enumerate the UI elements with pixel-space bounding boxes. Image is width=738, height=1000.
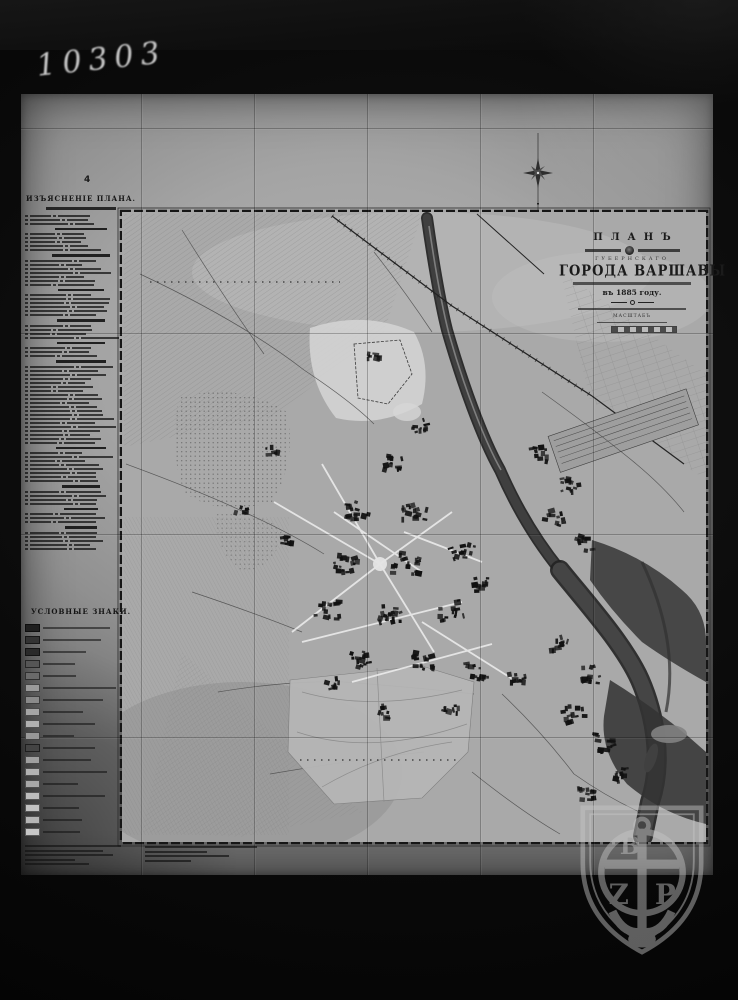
sign-row [25, 696, 137, 704]
legend-entry-row [25, 394, 137, 396]
sign-swatch [25, 768, 40, 776]
building-block [414, 658, 419, 660]
building-block [615, 771, 618, 774]
legend-entry-row [25, 536, 137, 538]
building-block [541, 451, 545, 456]
legend-entry-row [25, 284, 137, 286]
legend-entry-row [25, 302, 137, 304]
sign-row [25, 828, 137, 836]
building-block [356, 659, 359, 665]
building-block [270, 445, 274, 450]
building-block [345, 571, 350, 574]
legend-entry-row [25, 310, 137, 312]
legend-entry-row [25, 249, 137, 251]
building-block [399, 620, 402, 623]
building-block [333, 562, 336, 565]
map-title-block: ПЛАНЪ ГУБЕРНСКАГО ГОРОДА ВАРШАВЫ въ 1885… [559, 232, 705, 333]
legend-entry-row [25, 495, 137, 497]
legend-entry-row [25, 276, 137, 278]
title-plan-word: ПЛАНЪ [559, 232, 705, 243]
legend-entry-row [25, 426, 137, 428]
legend-entry-row [25, 268, 137, 270]
building-block [388, 612, 391, 617]
legend-footnotes [25, 845, 137, 865]
legend-entry-row [25, 456, 137, 458]
building-block [337, 553, 342, 559]
sign-swatch [25, 624, 40, 632]
sign-swatch [25, 828, 40, 836]
title-divider-ornament [559, 300, 705, 305]
building-block [586, 676, 592, 682]
building-block [616, 780, 620, 784]
legend-section-header [52, 254, 109, 257]
sign-label-bar [43, 711, 83, 713]
sign-row [25, 672, 137, 680]
sign-label-bar [43, 699, 103, 701]
building-block [329, 604, 331, 607]
legend-entry-row [25, 544, 137, 546]
sign-row [25, 768, 137, 776]
building-block [568, 704, 572, 709]
legend-entry-row [25, 452, 137, 454]
legend-section-header [56, 360, 107, 363]
watermark-letter-top: B [620, 831, 640, 860]
legend-entry-row [25, 406, 137, 408]
building-block [383, 715, 390, 721]
building-block [534, 454, 539, 459]
sign-row [25, 660, 137, 668]
photo-background: 10303 [0, 0, 738, 1000]
sign-swatch [25, 720, 40, 728]
building-block [438, 607, 443, 611]
legend-entry-row [25, 430, 137, 432]
legend-entry-row [25, 503, 137, 505]
map-sheet: 4 ИЗЪЯСНЕНІЕ ПЛАНА. УСЛОВНЫЕ ЗНАКИ. ПЛАН… [21, 94, 713, 875]
building-block [342, 569, 345, 572]
building-block [462, 556, 467, 559]
building-block [549, 647, 556, 653]
sign-swatch [25, 744, 40, 752]
sign-label-bar [43, 747, 95, 749]
legend-section-header [58, 289, 103, 292]
signs-swatch-list [25, 624, 137, 836]
sign-row [25, 744, 137, 752]
legend-entry-row [25, 215, 137, 217]
building-block [565, 706, 568, 711]
building-block [486, 577, 489, 579]
building-block [437, 614, 442, 619]
building-block [581, 707, 584, 712]
building-block [514, 673, 517, 677]
building-block [420, 427, 422, 429]
building-block [478, 667, 480, 669]
sign-row [25, 708, 137, 716]
building-block [242, 510, 249, 515]
legend-entry-row [25, 480, 137, 482]
sign-row [25, 732, 137, 740]
building-block [409, 506, 411, 510]
scale-label: МАСШТАБЪ [559, 314, 705, 319]
illegible-text-line [573, 282, 691, 285]
illegible-text-line [585, 249, 621, 252]
sign-row [25, 636, 137, 644]
building-block [380, 712, 383, 716]
building-block [337, 680, 340, 685]
legend-index-list [25, 215, 137, 550]
building-block [451, 606, 456, 611]
sign-label-bar [43, 795, 105, 797]
building-block [538, 444, 545, 450]
building-block [380, 706, 384, 710]
sign-row [25, 780, 137, 788]
legend-entry-row [25, 306, 137, 308]
building-block [482, 581, 489, 586]
imperial-crest-icon [625, 246, 634, 255]
building-block [510, 680, 513, 686]
sign-label-bar [43, 771, 107, 773]
building-block [385, 618, 387, 621]
compass-rose-icon [523, 133, 553, 215]
sign-swatch [25, 696, 40, 704]
legend-entry-row [25, 223, 137, 225]
legend-section-header [55, 228, 106, 231]
title-year-line: въ 1885 году. [559, 288, 705, 297]
legend-entry-row [25, 370, 137, 372]
sign-label-bar [43, 723, 95, 725]
building-block [386, 454, 392, 459]
building-block [442, 618, 446, 622]
building-block [390, 571, 396, 575]
sign-label-bar [43, 735, 74, 737]
legend-entry-row [25, 374, 137, 376]
building-block [571, 489, 574, 495]
building-block [454, 704, 457, 707]
sign-label-bar [43, 783, 78, 785]
legend-entry-row [25, 280, 137, 282]
legend-entry-row [25, 521, 137, 523]
legend-entry-row [25, 402, 137, 404]
title-gubernia-word: ГУБЕРНСКАГО [559, 256, 705, 262]
building-block [454, 599, 462, 606]
legend-entry-row [25, 272, 137, 274]
watermark-crest: B Z P [568, 798, 716, 960]
sign-label-bar [43, 663, 75, 665]
legend-entry-row [25, 464, 137, 466]
legend-entry-row [25, 499, 137, 501]
watermark-letter-right: P [655, 878, 676, 911]
building-block [597, 747, 604, 753]
legend-entry-row [25, 386, 137, 388]
sign-label-bar [43, 651, 86, 653]
building-block [411, 572, 414, 576]
legend-entry-row [25, 337, 137, 339]
building-block [582, 714, 588, 718]
building-block [313, 614, 317, 617]
building-block [423, 429, 427, 433]
building-block [424, 657, 429, 662]
legend-entry-row [25, 414, 137, 416]
legend-entry-row [25, 378, 137, 380]
sign-swatch [25, 660, 40, 668]
legend-entry-row [25, 472, 137, 474]
legend-entry-row [25, 513, 137, 515]
sign-swatch [25, 636, 40, 644]
sign-label-bar [43, 759, 91, 761]
building-block [337, 614, 341, 619]
legend-entry-row [25, 366, 137, 368]
building-block [545, 454, 549, 460]
legend-entry-row [25, 390, 137, 392]
sign-row [25, 804, 137, 812]
sign-row [25, 816, 137, 824]
legend-entry-row [25, 245, 137, 247]
building-block [474, 589, 479, 593]
building-block [575, 706, 580, 711]
sign-label-bar [43, 807, 79, 809]
legend-entry-row [25, 333, 137, 335]
sign-swatch [25, 732, 40, 740]
sign-swatch [25, 684, 40, 692]
legend-entry-row [25, 517, 137, 519]
legend-entry-row [25, 294, 137, 296]
legend-entry-row [25, 314, 137, 316]
sign-swatch [25, 672, 40, 680]
legend-section-header [56, 447, 106, 450]
building-block [581, 666, 585, 671]
building-block [586, 787, 590, 792]
building-block [486, 676, 489, 679]
building-block [413, 664, 419, 668]
building-block [341, 555, 347, 560]
conventional-signs-panel: УСЛОВНЫЕ ЗНАКИ. [25, 607, 137, 868]
sign-label-bar [43, 675, 76, 677]
sign-row [25, 756, 137, 764]
sign-swatch [25, 804, 40, 812]
legend-entry-row [25, 298, 137, 300]
legend-entry-row [25, 438, 137, 440]
building-block [393, 607, 399, 610]
legend-entry-row [25, 410, 137, 412]
legend-entry-row [25, 398, 137, 400]
sign-row [25, 684, 137, 692]
building-block [351, 657, 354, 660]
title-crest-line [559, 246, 705, 255]
building-block [444, 706, 447, 712]
legend-title: ИЗЪЯСНЕНІЕ ПЛАНА. [25, 194, 137, 203]
sign-row [25, 792, 137, 800]
sign-row [25, 720, 137, 728]
legend-entry-row [25, 382, 137, 384]
legend-entry-row [25, 532, 137, 534]
scale-bar [611, 326, 677, 333]
legend-panel: ИЗЪЯСНЕНІЕ ПЛАНА. [25, 194, 137, 552]
building-block [412, 516, 419, 521]
legend-entry-row [25, 264, 137, 266]
sign-swatch [25, 756, 40, 764]
building-block [411, 426, 415, 430]
legend-entry-row [25, 260, 137, 262]
legend-entry-row [25, 329, 137, 331]
building-block [430, 664, 435, 670]
sign-swatch [25, 816, 40, 824]
building-block [401, 517, 404, 523]
legend-entry-row [25, 418, 137, 420]
legend-entry-row [25, 468, 137, 470]
building-block [583, 548, 588, 553]
building-block [386, 711, 389, 715]
sign-swatch [25, 648, 40, 656]
legend-section-header [62, 485, 100, 488]
legend-section-header [65, 526, 97, 529]
building-block [367, 357, 370, 361]
building-block [265, 447, 267, 449]
building-block [406, 564, 411, 569]
building-block [584, 537, 591, 541]
title-city-words: ГОРОДА ВАРШАВЫ [559, 263, 705, 280]
building-block [603, 748, 610, 753]
legend-entry-row [25, 233, 137, 235]
building-block [381, 604, 385, 609]
sign-swatch [25, 708, 40, 716]
legend-entry-row [25, 219, 137, 221]
building-block [561, 517, 566, 522]
building-block [479, 674, 486, 680]
legend-entry-row [25, 548, 137, 550]
legend-section-header [57, 342, 105, 345]
illegible-text-line [638, 249, 680, 252]
legend-entry-row [25, 460, 137, 462]
building-block [576, 482, 581, 487]
legend-entry-row [25, 540, 137, 542]
building-block [474, 675, 477, 678]
watermark-letter-left: Z [609, 878, 629, 911]
building-block [457, 706, 460, 712]
legend-entry-row [25, 325, 137, 327]
sign-label-bar [43, 819, 82, 821]
legend-entry-row [25, 442, 137, 444]
building-block [412, 650, 419, 657]
sign-row [25, 624, 137, 632]
building-block [350, 516, 357, 521]
building-block [323, 609, 328, 614]
legend-entry-row [25, 347, 137, 349]
building-block [367, 351, 371, 356]
building-block [266, 453, 273, 457]
illegible-imprint-line [578, 308, 686, 310]
legend-entry-row [25, 422, 137, 424]
legend-section-header [57, 319, 105, 322]
building-block [456, 711, 458, 716]
legend-entry-row [25, 351, 137, 353]
legend-subheader-bar [46, 207, 116, 210]
legend-entry-row [25, 241, 137, 243]
legend-entry-row [25, 237, 137, 239]
legend-entry-row [25, 434, 137, 436]
sign-label-bar [43, 687, 116, 689]
legend-entry-row [25, 355, 137, 357]
sign-label-bar [43, 831, 80, 833]
building-block [570, 712, 575, 718]
bottom-margin-notes [145, 846, 275, 864]
sign-swatch [25, 792, 40, 800]
building-block [555, 639, 558, 644]
legend-entry-row [25, 476, 137, 478]
building-block [353, 512, 360, 516]
building-block [609, 738, 615, 742]
building-block [415, 558, 418, 564]
sign-row [25, 648, 137, 656]
building-block [544, 448, 547, 451]
illegible-scale-note [597, 322, 667, 324]
fold-panel-number: 4 [84, 175, 90, 185]
legend-entry-row [25, 491, 137, 493]
building-block [507, 672, 512, 678]
sign-swatch [25, 780, 40, 788]
legend-section-header [64, 508, 99, 511]
conventional-signs-title: УСЛОВНЫЕ ЗНАКИ. [25, 607, 137, 616]
building-block [517, 679, 522, 682]
sign-label-bar [43, 627, 110, 629]
sign-label-bar [43, 639, 101, 641]
